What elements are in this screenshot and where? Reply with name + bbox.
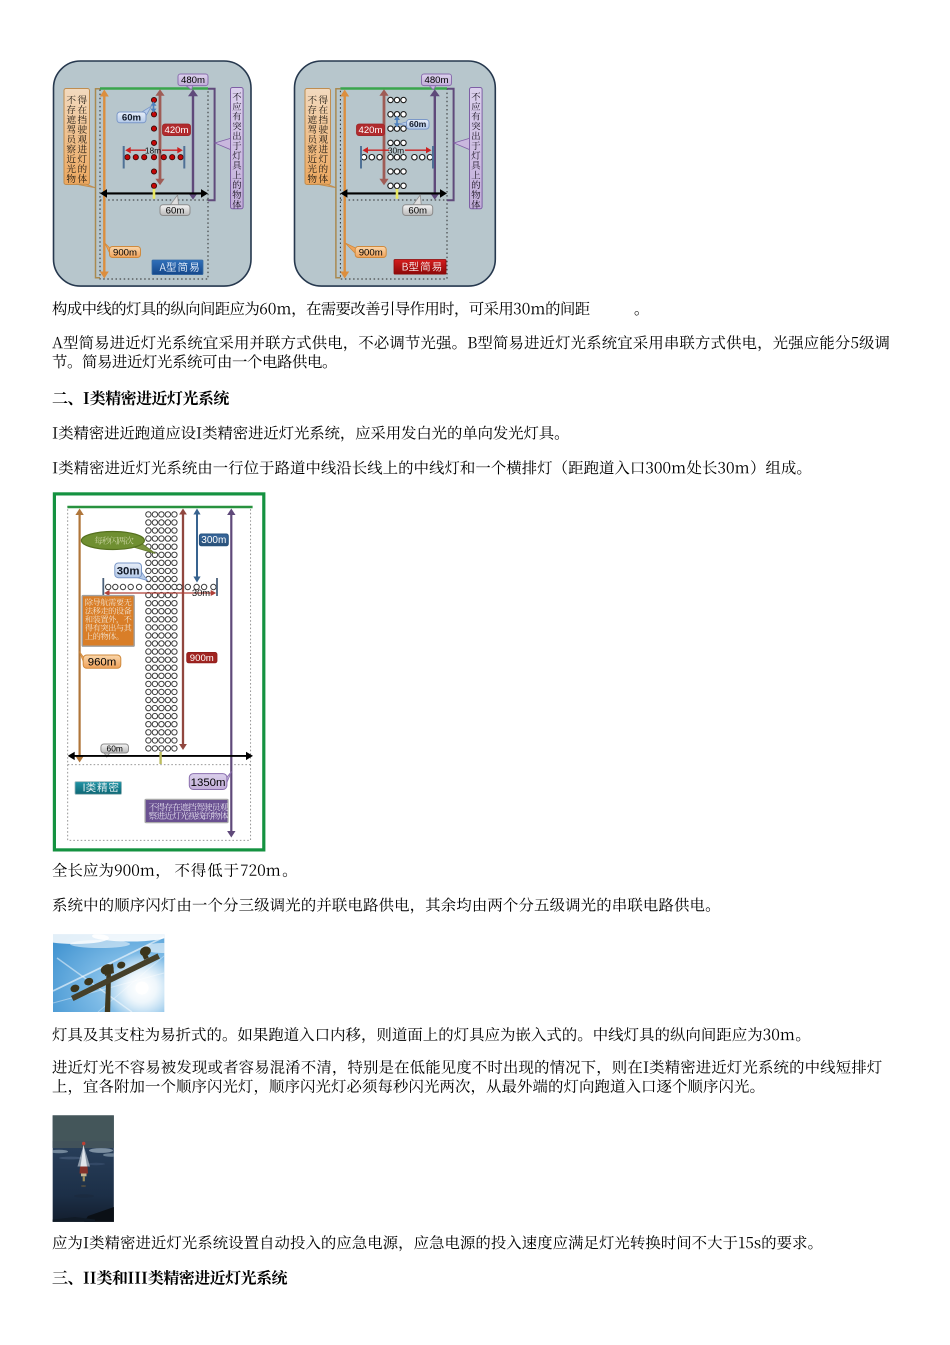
svg-text:18m: 18m <box>145 146 161 156</box>
svg-text:30m: 30m <box>117 566 140 578</box>
svg-text:30m: 30m <box>388 146 404 156</box>
svg-text:900m: 900m <box>113 247 137 258</box>
svg-text:960m: 960m <box>88 656 117 668</box>
svg-text:480m: 480m <box>181 75 205 86</box>
svg-text:60m: 60m <box>107 743 123 753</box>
svg-text:480m: 480m <box>425 75 449 86</box>
svg-text:420m: 420m <box>359 125 383 136</box>
svg-text:60m: 60m <box>409 119 427 129</box>
svg-text:60m: 60m <box>122 113 141 124</box>
svg-text:1350m: 1350m <box>191 777 226 789</box>
svg-text:420m: 420m <box>165 125 189 136</box>
svg-text:30m: 30m <box>192 587 210 598</box>
svg-text:60m: 60m <box>166 205 185 216</box>
svg-text:60m: 60m <box>408 205 427 216</box>
svg-text:300m: 300m <box>201 535 226 546</box>
svg-text:900m: 900m <box>359 247 383 258</box>
svg-text:900m: 900m <box>190 653 214 664</box>
